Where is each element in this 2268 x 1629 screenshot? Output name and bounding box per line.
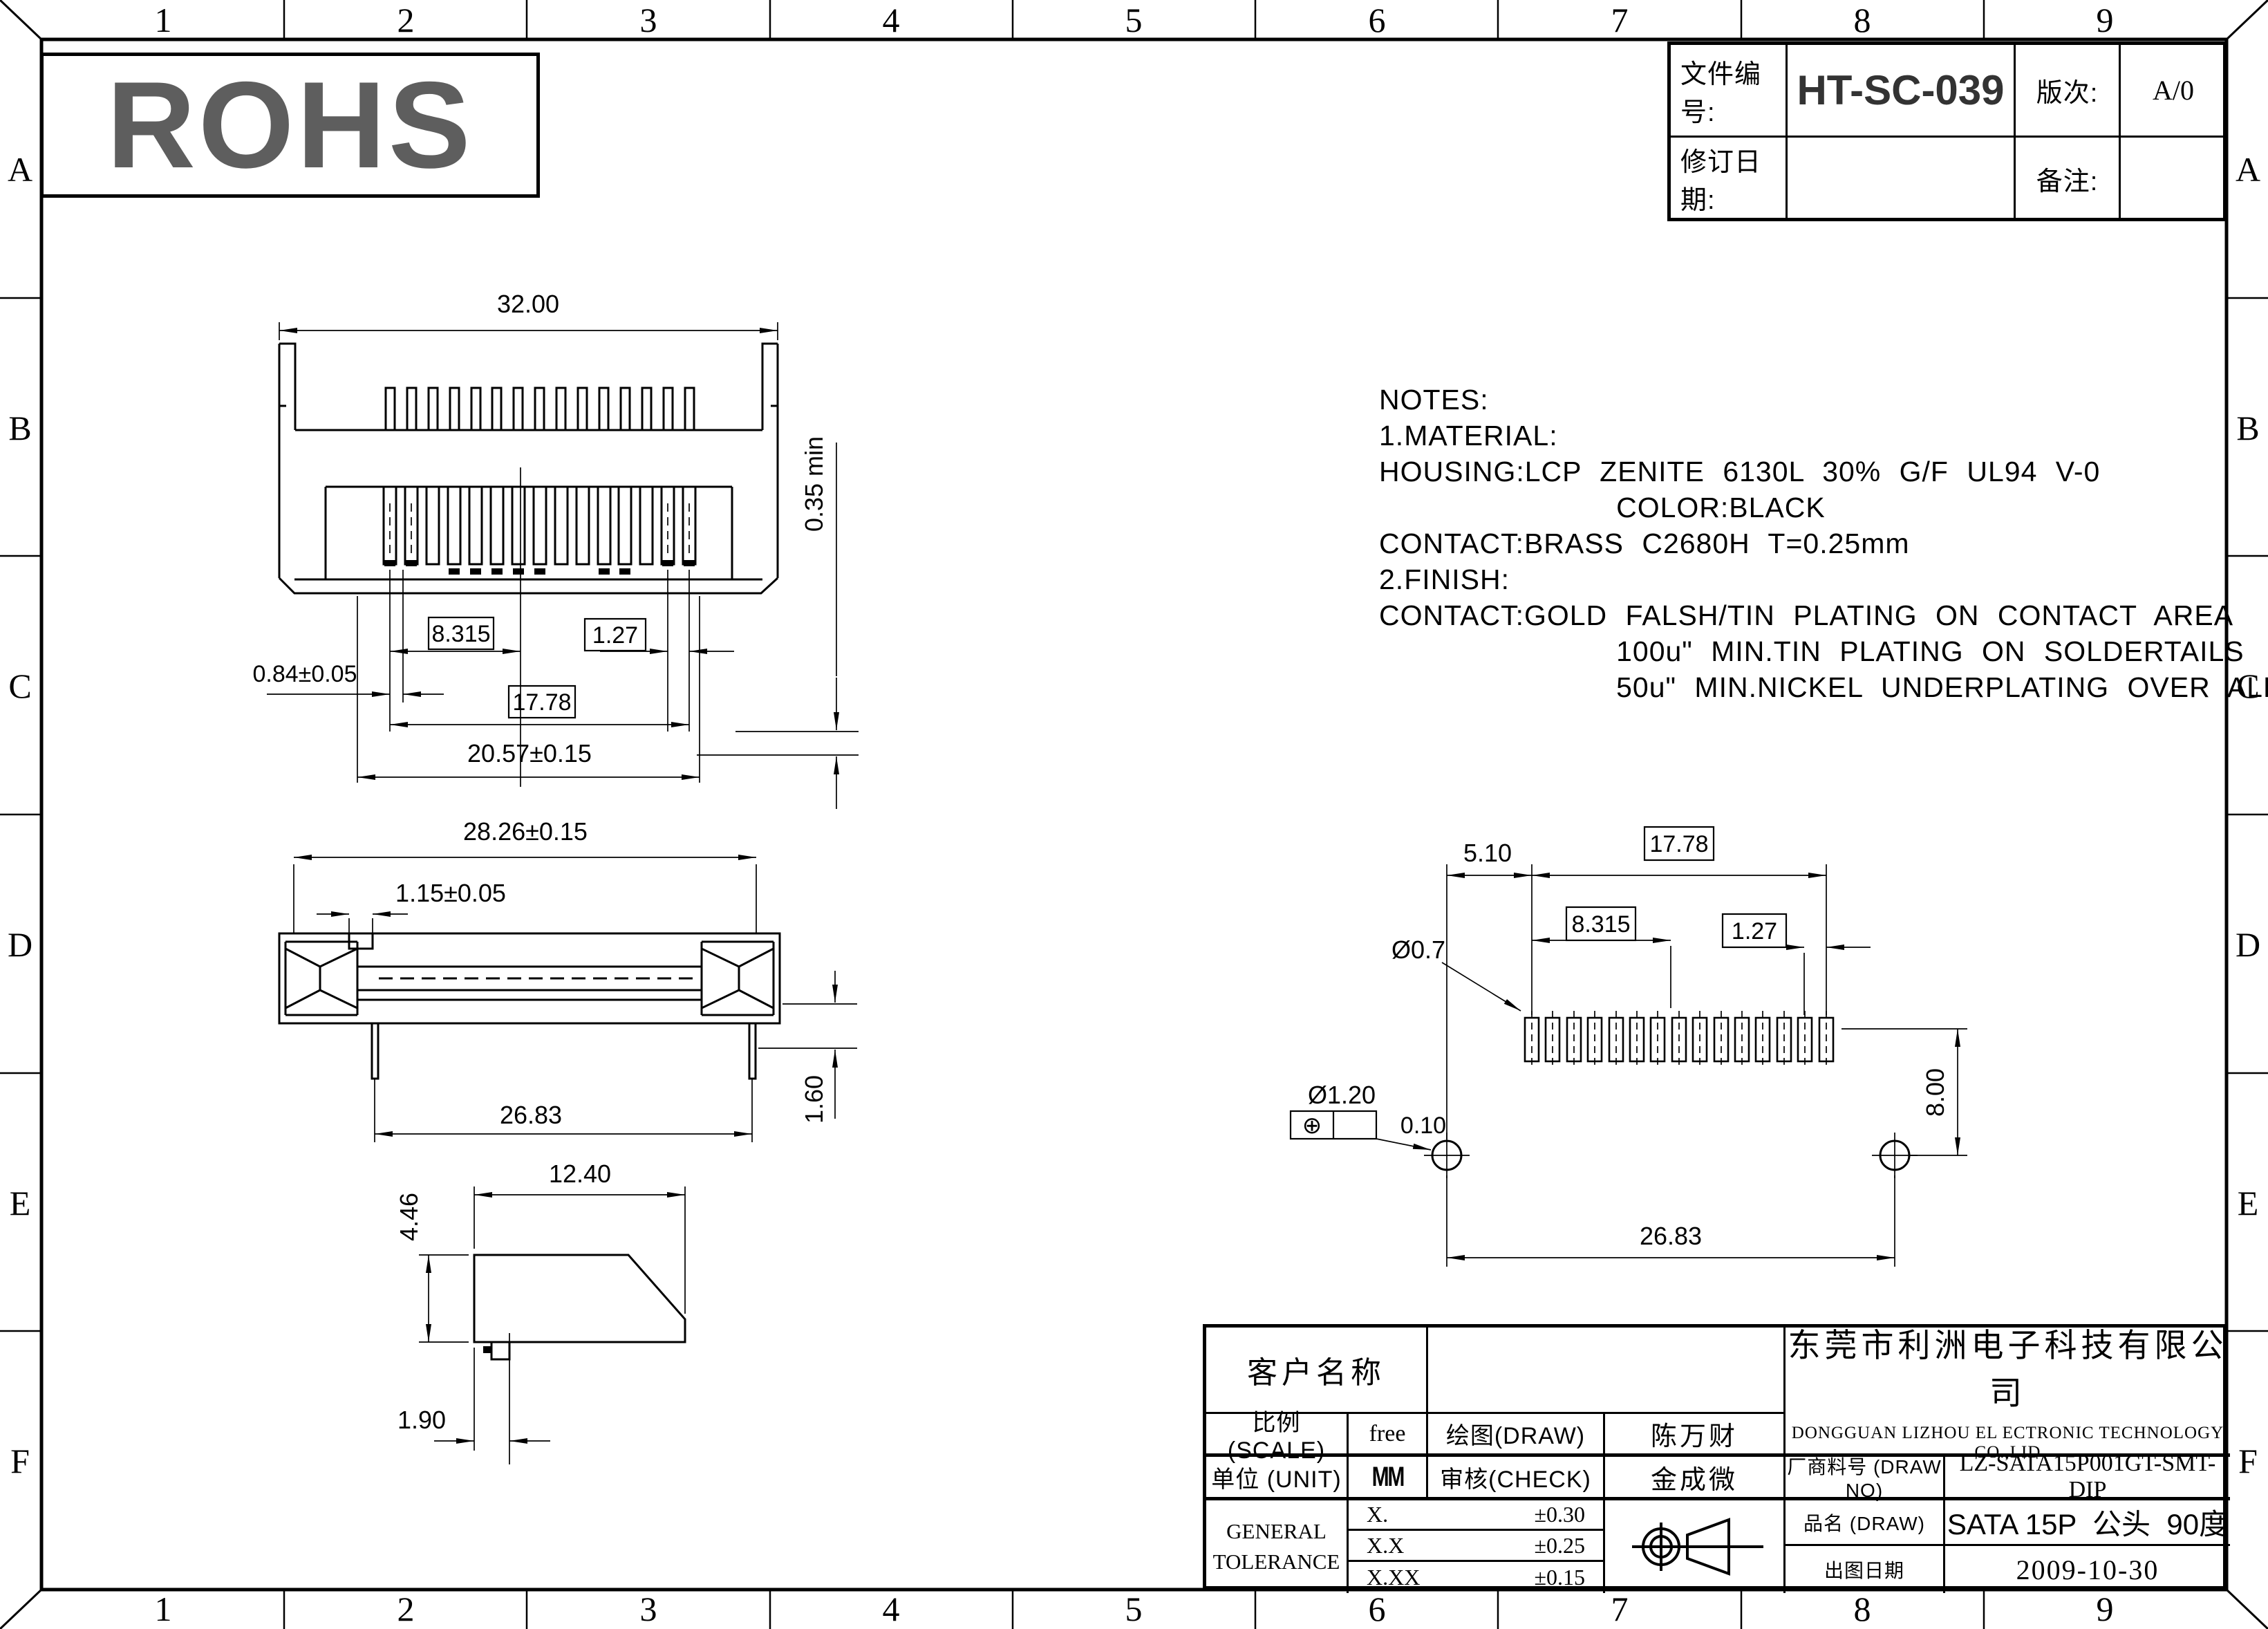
grid-col-label: 4 bbox=[883, 1, 900, 39]
note-line: HOUSING:LCP ZENITE 6130L 30% G/F UL94 V-… bbox=[1379, 454, 2112, 490]
grid-col-label: 3 bbox=[640, 1590, 657, 1628]
customer-label: 客户名称 bbox=[1206, 1328, 1428, 1414]
third-angle-projection-icon bbox=[1605, 1500, 1786, 1593]
grid-col-label: 5 bbox=[1125, 1, 1143, 39]
note-line: 2.FINISH: bbox=[1379, 561, 2112, 597]
grid-col-label: 5 bbox=[1125, 1590, 1143, 1628]
grid-col-label: 7 bbox=[1611, 1, 1629, 39]
grid-col-label: 7 bbox=[1611, 1590, 1629, 1628]
side-foot-pad bbox=[483, 1346, 491, 1353]
grid-row-label: F bbox=[10, 1442, 30, 1480]
grid-col-label: 8 bbox=[1854, 1590, 1871, 1628]
unit-label: 单位 (UNIT) bbox=[1206, 1457, 1349, 1500]
grid-col-label: 9 bbox=[2097, 1590, 2114, 1628]
dim-front-contact-min: 0.35 min bbox=[800, 436, 828, 532]
title-block: 客户名称 东莞市利洲电子科技有限公司 DONGGUAN LIZHOU EL EC… bbox=[1203, 1324, 2227, 1590]
grid-row-label: B bbox=[2236, 409, 2259, 447]
remark-label: 备注: bbox=[2016, 138, 2121, 219]
grid-col-label: 2 bbox=[397, 1, 415, 39]
rev-date-value bbox=[1788, 138, 2016, 219]
dim-side-depth: 12.40 bbox=[549, 1160, 611, 1188]
grid-col-label: 8 bbox=[1854, 1, 1871, 39]
dim-front-contact-span: 17.78 bbox=[512, 689, 571, 716]
dim-pcb-hole-span: 26.83 bbox=[1640, 1222, 1702, 1250]
note-line: NOTES: bbox=[1379, 382, 2112, 418]
position-tolerance-icon: ⊕ bbox=[1302, 1113, 1322, 1139]
grid-row-label: E bbox=[2238, 1184, 2259, 1222]
dim-pcb-hole-offset: 8.00 bbox=[1921, 1068, 1949, 1117]
dim-front-pitch: 1.27 bbox=[592, 622, 638, 649]
grid-row-label: F bbox=[2238, 1442, 2258, 1480]
doc-header: 文件编号: HT-SC-039 版次: A/0 修订日期: 备注: bbox=[1667, 41, 2227, 221]
check-label: 审核(CHECK) bbox=[1428, 1457, 1605, 1500]
tolerance-row: X.X±0.25 bbox=[1349, 1531, 1605, 1562]
rev-date-label: 修订日期: bbox=[1671, 138, 1788, 219]
dim-side-height: 4.46 bbox=[395, 1193, 423, 1241]
tolerance-row: X.±0.30 bbox=[1349, 1500, 1605, 1531]
issue-date-label: 出图日期 bbox=[1786, 1546, 1945, 1593]
grid-col-label: 6 bbox=[1369, 1, 1386, 39]
dim-pcb-pad-pitch: 1.27 bbox=[1732, 918, 1777, 944]
note-line: COLOR:BLACK bbox=[1379, 490, 2112, 525]
dim-pcb-edge-offset: 5.10 bbox=[1463, 839, 1512, 867]
dim-pcb-hole-dia: Ø1.20 bbox=[1308, 1081, 1376, 1109]
dim-front-slot-span: 20.57±0.15 bbox=[467, 739, 592, 767]
part-no-value: LZ-SATA15P001GT-SMT-DIP bbox=[1945, 1457, 2230, 1500]
note-line: 1.MATERIAL: bbox=[1379, 418, 2112, 454]
customer-value bbox=[1428, 1328, 1786, 1414]
dim-pcb-pad-span: 17.78 bbox=[1649, 831, 1708, 857]
grid-row-label: C bbox=[8, 667, 31, 705]
dim-pcb-pad-dia: Ø0.7 bbox=[1391, 935, 1445, 964]
rev-label: 版次: bbox=[2016, 45, 2121, 138]
dim-front-overall-width: 32.00 bbox=[497, 290, 559, 318]
check-value: 金成微 bbox=[1605, 1457, 1786, 1500]
issue-date-value: 2009-10-30 bbox=[1945, 1546, 2230, 1593]
note-line: CONTACT:GOLD FALSH/TIN PLATING ON CONTAC… bbox=[1379, 597, 2112, 633]
dim-bottom-pin-span: 26.83 bbox=[500, 1101, 562, 1129]
grid-row-label: A bbox=[8, 150, 32, 189]
rohs-text: ROHS bbox=[106, 64, 473, 187]
grid-col-label: 2 bbox=[397, 1590, 415, 1628]
grid-row-label: D bbox=[2236, 925, 2260, 964]
grid-col-label: 4 bbox=[883, 1590, 900, 1628]
grid-row-label: B bbox=[8, 409, 31, 447]
dim-front-pitch-center: 8.315 bbox=[431, 621, 490, 647]
rev-value: A/0 bbox=[2121, 45, 2226, 138]
grid-row-label: D bbox=[8, 925, 32, 964]
note-line: 100u" MIN.TIN PLATING ON SOLDERTAILS bbox=[1379, 633, 2112, 669]
dim-pcb-center-offset: 8.315 bbox=[1571, 911, 1630, 938]
view-bottom: 28.26±0.15 1.15±0.05 1.60 26.83 bbox=[279, 817, 857, 1142]
grid-col-label: 1 bbox=[155, 1590, 172, 1628]
product-name-value: SATA 15P 公头 90度 bbox=[1945, 1500, 2230, 1546]
notes-block: NOTES: 1.MATERIAL: HOUSING:LCP ZENITE 61… bbox=[1379, 382, 2112, 705]
grid-row-label: A bbox=[2236, 150, 2260, 189]
file-no-value: HT-SC-039 bbox=[1788, 45, 2016, 138]
drawing-sheet: 1 2 3 4 5 6 7 8 9 1 2 3 4 5 6 7 8 9 A B … bbox=[0, 0, 2268, 1629]
part-no-label: 厂商料号 (DRAW NO) bbox=[1786, 1457, 1945, 1500]
grid-col-label: 3 bbox=[640, 1, 657, 39]
view-front: 32.00 0.35 min 8.315 1.27 0.84±0.05 17.7… bbox=[252, 290, 859, 809]
view-pcb-layout: 5.10 17.78 8.315 1.27 Ø0.7 Ø1.20 ⊕ 0.10 … bbox=[1291, 827, 1967, 1267]
grid-row-label: E bbox=[10, 1184, 31, 1222]
unit-value: MM bbox=[1349, 1457, 1428, 1500]
company-name-cn: 东莞市利洲电子科技有限公司 bbox=[1786, 1319, 2230, 1414]
tolerance-row: X.XX±0.15 bbox=[1349, 1562, 1605, 1593]
rohs-logo: ROHS bbox=[40, 53, 540, 198]
note-line: CONTACT:BRASS C2680H T=0.25mm bbox=[1379, 525, 2112, 561]
dim-pcb-position-tol: 0.10 bbox=[1400, 1113, 1446, 1139]
solder-feet bbox=[384, 560, 695, 575]
draw-value: 陈万财 bbox=[1605, 1414, 1786, 1457]
scale-label: 比例 (SCALE) bbox=[1206, 1414, 1349, 1457]
draw-label: 绘图(DRAW) bbox=[1428, 1414, 1605, 1457]
remark-value bbox=[2121, 138, 2226, 219]
dim-bottom-overall: 28.26±0.15 bbox=[463, 817, 588, 846]
view-side: 12.40 4.46 1.90 bbox=[395, 1160, 685, 1464]
dim-bottom-latch: 1.15±0.05 bbox=[395, 879, 506, 907]
grid-col-label: 1 bbox=[155, 1, 172, 39]
dim-side-foot-offset: 1.90 bbox=[397, 1406, 446, 1434]
dim-bottom-pin-height: 1.60 bbox=[800, 1075, 828, 1124]
general-tolerance-label: GENERAL TOLERANCE bbox=[1206, 1500, 1349, 1593]
grid-col-label: 6 bbox=[1369, 1590, 1386, 1628]
scale-value: free bbox=[1349, 1414, 1428, 1457]
grid-col-label: 9 bbox=[2097, 1, 2114, 39]
file-no-label: 文件编号: bbox=[1671, 45, 1788, 138]
dim-front-tab-offset: 0.84±0.05 bbox=[252, 661, 357, 687]
note-line: 50u" MIN.NICKEL UNDERPLATING OVER ALL bbox=[1379, 669, 2112, 705]
company-cell: 东莞市利洲电子科技有限公司 DONGGUAN LIZHOU EL ECTRONI… bbox=[1786, 1328, 2230, 1457]
product-name-label: 品名 (DRAW) bbox=[1786, 1500, 1945, 1546]
